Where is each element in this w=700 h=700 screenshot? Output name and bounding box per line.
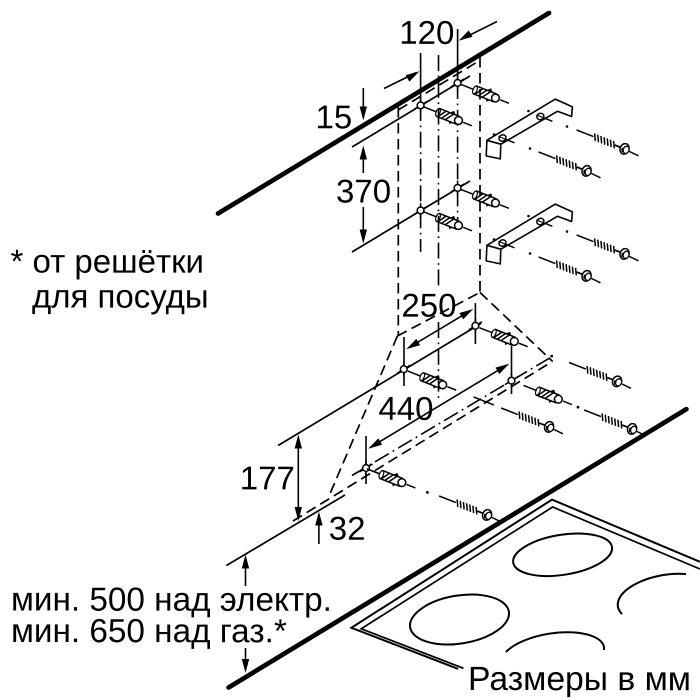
- svg-text:Размеры в мм: Размеры в мм: [468, 660, 691, 698]
- svg-text:177: 177: [240, 459, 295, 496]
- svg-text:для посуды: для посуды: [32, 278, 209, 315]
- svg-text:440: 440: [378, 390, 433, 427]
- svg-text:15: 15: [315, 98, 352, 135]
- svg-text:120: 120: [399, 14, 454, 51]
- svg-text:мин. 650 над газ.*: мин. 650 над газ.*: [11, 613, 287, 650]
- svg-text:32: 32: [329, 510, 366, 547]
- svg-text:250: 250: [401, 287, 456, 324]
- svg-text:370: 370: [336, 173, 391, 210]
- svg-text:* от решётки: * от решётки: [10, 243, 203, 280]
